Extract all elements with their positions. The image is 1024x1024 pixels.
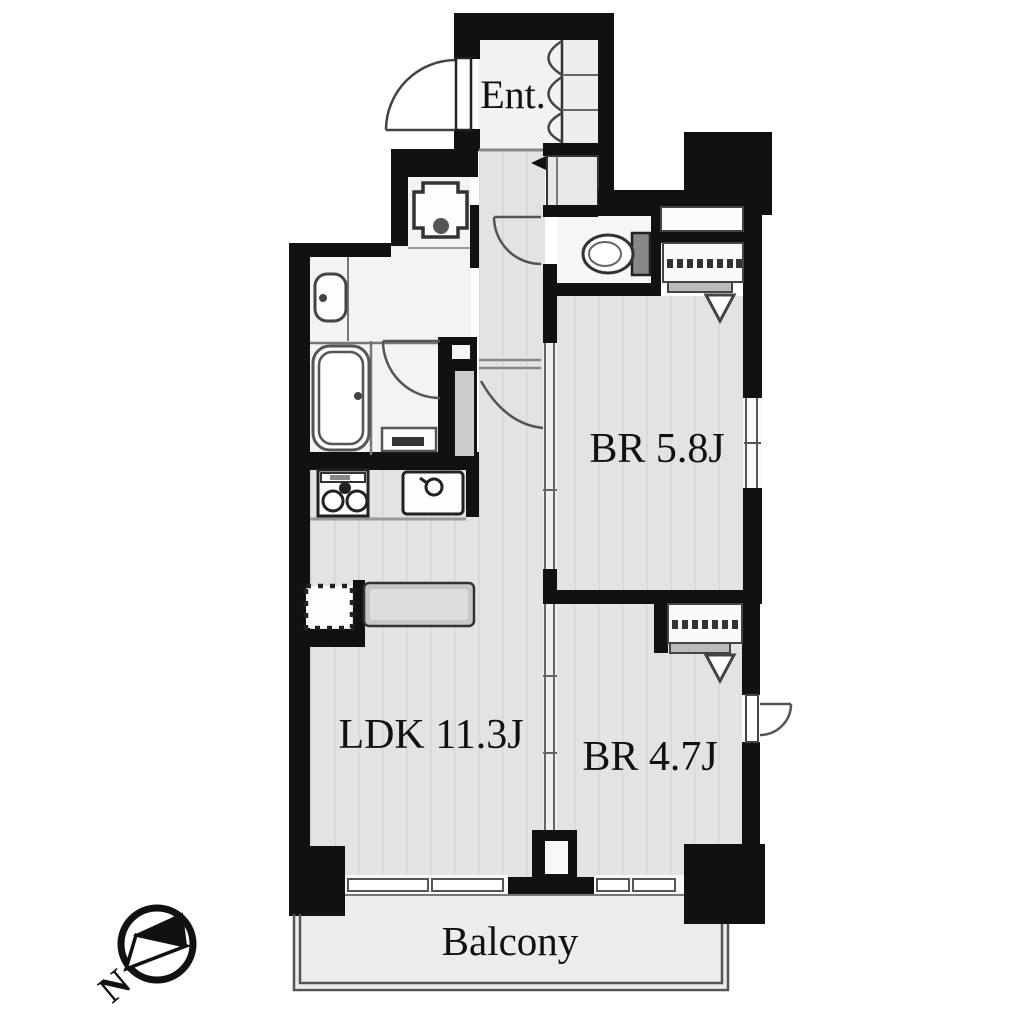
svg-text:Ent.: Ent. xyxy=(480,72,546,117)
svg-text:BR 5.8J: BR 5.8J xyxy=(589,426,724,472)
svg-text:Balcony: Balcony xyxy=(442,918,579,964)
svg-text:BR 4.7J: BR 4.7J xyxy=(582,734,717,780)
svg-text:LDK 11.3J: LDK 11.3J xyxy=(338,712,523,758)
